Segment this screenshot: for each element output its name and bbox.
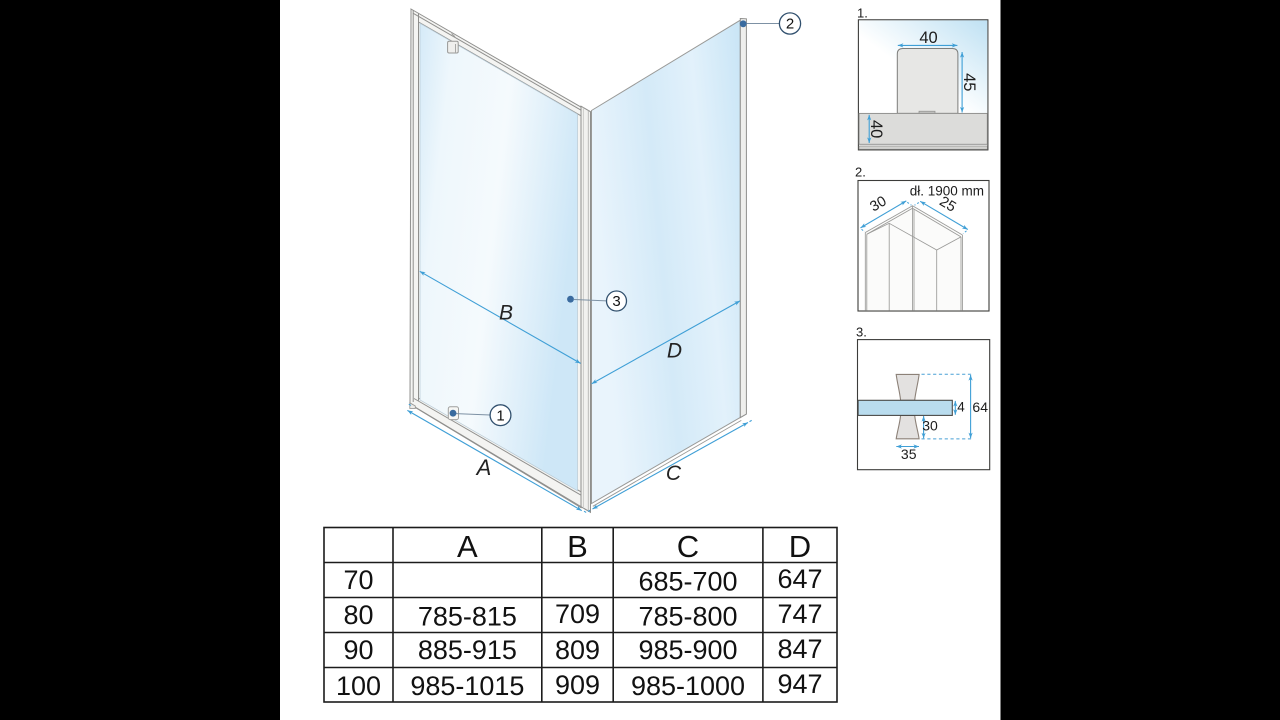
svg-text:785-800: 785-800 (638, 602, 737, 632)
svg-text:2.: 2. (855, 165, 866, 180)
svg-text:847: 847 (777, 634, 822, 664)
svg-text:985-900: 985-900 (638, 635, 737, 665)
svg-text:647: 647 (777, 564, 822, 594)
svg-text:40: 40 (867, 120, 885, 138)
svg-text:B: B (499, 302, 513, 325)
svg-text:B: B (567, 529, 588, 564)
svg-text:40: 40 (919, 29, 937, 47)
svg-text:1: 1 (496, 407, 504, 424)
svg-text:2: 2 (786, 16, 794, 33)
svg-text:35: 35 (901, 446, 917, 462)
svg-text:A: A (475, 455, 492, 480)
svg-text:685-700: 685-700 (638, 567, 737, 597)
svg-text:30: 30 (922, 418, 938, 434)
svg-text:747: 747 (777, 599, 822, 629)
svg-text:45: 45 (960, 73, 978, 91)
svg-text:4: 4 (957, 400, 965, 415)
svg-text:985-1015: 985-1015 (410, 671, 524, 701)
svg-text:A: A (457, 529, 478, 564)
svg-text:947: 947 (777, 669, 822, 699)
svg-text:785-815: 785-815 (418, 602, 517, 632)
svg-text:80: 80 (343, 600, 373, 630)
svg-text:885-915: 885-915 (418, 635, 517, 665)
svg-text:1.: 1. (857, 6, 868, 21)
svg-text:D: D (667, 340, 682, 363)
svg-text:C: C (666, 462, 682, 485)
svg-text:100: 100 (336, 671, 381, 701)
svg-text:3.: 3. (856, 325, 867, 340)
svg-text:90: 90 (343, 635, 373, 665)
svg-text:64: 64 (972, 399, 988, 415)
svg-text:709: 709 (555, 599, 600, 629)
svg-text:909: 909 (555, 670, 600, 700)
svg-text:C: C (677, 529, 699, 564)
svg-text:3: 3 (612, 293, 620, 310)
svg-text:D: D (789, 529, 811, 564)
svg-text:809: 809 (555, 635, 600, 665)
svg-text:985-1000: 985-1000 (631, 671, 745, 701)
svg-text:70: 70 (343, 565, 373, 595)
